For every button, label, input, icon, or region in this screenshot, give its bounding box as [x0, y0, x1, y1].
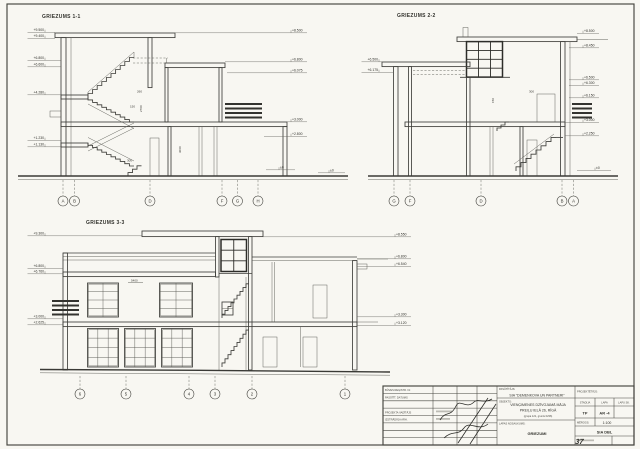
svg-text:H: H [256, 199, 259, 204]
elevation-label: +4.280 [34, 91, 45, 95]
elevation-label: +2.625 [34, 321, 45, 325]
dim-label: 150 [491, 98, 495, 103]
section-title: GRIEZUMS 1-1 [42, 14, 81, 20]
elevation-label: +2.250 [584, 132, 595, 136]
elevation-label: +9.400 [34, 34, 45, 38]
elevation-label: +6.800 [34, 56, 45, 60]
stage-value: TP [583, 410, 588, 415]
dim-label: 260 [137, 90, 142, 94]
svg-text:B: B [561, 199, 564, 204]
reg-no-label: BŪVES REĢISTR. Nr. [385, 388, 411, 392]
sheet-count-header: LAPU SK. [618, 401, 630, 405]
elevation-label: +6.800 [34, 264, 45, 268]
scale-value: 1:100 [603, 421, 612, 425]
project-manager-label: PROJEKTA VADĪTĀJS [385, 410, 412, 414]
sheet-name: GRIEZUMI [527, 431, 546, 436]
dim-label: 300 [127, 159, 132, 163]
elevation-label: ±0 [280, 166, 284, 170]
sheet-no-value: AR -4 [599, 410, 610, 415]
section-title: GRIEZUMS 2-2 [397, 13, 436, 19]
elevation-label: +6.760 [34, 270, 45, 274]
firm-name: SIA DBL [597, 429, 613, 434]
elevation-label: +6.150 [584, 94, 595, 98]
section-title: GRIEZUMS 3-3 [86, 220, 125, 226]
sheet-name-label: LAPAS NOSAUKUMS: [499, 422, 526, 426]
elevation-label: +6.540 [396, 262, 407, 266]
svg-text:B: B [73, 199, 76, 204]
svg-text:F: F [221, 199, 224, 204]
dim-label: 2700 [139, 105, 143, 112]
order-date-label: PASŪTĪT. DATUMS [385, 396, 408, 400]
scale-label: MĒROGS: [577, 421, 590, 425]
elevation-label: +8.550 [396, 233, 407, 237]
dim-label: 150 [130, 105, 135, 109]
elevation-label: +6.075 [292, 69, 303, 73]
elevation-label: +6.300 [584, 81, 595, 85]
elevation-label: +3.000 [292, 118, 303, 122]
architect-label: IZSTRĀDĀJA ARH. [385, 418, 408, 422]
designer-label: PROJEKTĒTĀJS: [577, 390, 598, 394]
drawing-sheet: GRIEZUMS 1-1 [0, 0, 640, 449]
elevation-label: +8.500 [584, 29, 595, 33]
object-name-line3: (grupa 121, grunts 0236) [524, 414, 553, 418]
svg-text:A: A [572, 199, 575, 204]
elevation-label: ±0 [330, 169, 334, 173]
client-label: PASŪTĪTĀJS: [499, 387, 516, 391]
elevation-label: +2.800 [292, 132, 303, 136]
elevation-label: +6.800 [396, 255, 407, 259]
elevation-label: +6.600 [34, 63, 45, 67]
stage-header: STADIJA [580, 401, 591, 405]
elevation-label: +1.130 [34, 143, 45, 147]
elevation-label: ±0 [596, 166, 600, 170]
blueprint-svg: GRIEZUMS 1-1 [0, 0, 640, 449]
object-name-line2: PREIĻU IELĀ 26, RĪGĀ [520, 409, 557, 413]
dim-label: 5400 [131, 279, 138, 283]
elevation-label: +3.120 [396, 321, 407, 325]
svg-text:D: D [479, 199, 482, 204]
elevation-label: +6.500 [368, 58, 379, 62]
elevation-label: +1.230 [34, 136, 45, 140]
illegible-name-text [436, 411, 452, 413]
client-name: SIA "DEMENKOVA UN PARTNERI" [509, 393, 565, 397]
svg-text:D: D [148, 199, 151, 204]
elevation-label: +6.175 [368, 68, 379, 72]
elevation-label: +3.000 [584, 118, 595, 122]
elevation-label: +8.450 [584, 44, 595, 48]
elevation-label: +9.500 [34, 28, 45, 32]
elevation-label: +9.300 [34, 232, 45, 236]
svg-text:F: F [409, 199, 412, 204]
elevation-label: +3.000 [34, 315, 45, 319]
object-name-line1: VIENĢIMENES DZĪVOJAMĀ MĀJA [510, 403, 566, 407]
elevation-label: +8.500 [292, 29, 303, 33]
dim-label: 3060 [178, 146, 182, 153]
sheet-no-header: LAPA [601, 401, 608, 405]
elevation-label: +6.800 [292, 58, 303, 62]
svg-text:A: A [62, 199, 65, 204]
illegible-name-text [436, 418, 450, 420]
elevation-label: +6.500 [584, 76, 595, 80]
elevation-label: +3.300 [396, 313, 407, 317]
dim-label: 300 [529, 90, 534, 94]
